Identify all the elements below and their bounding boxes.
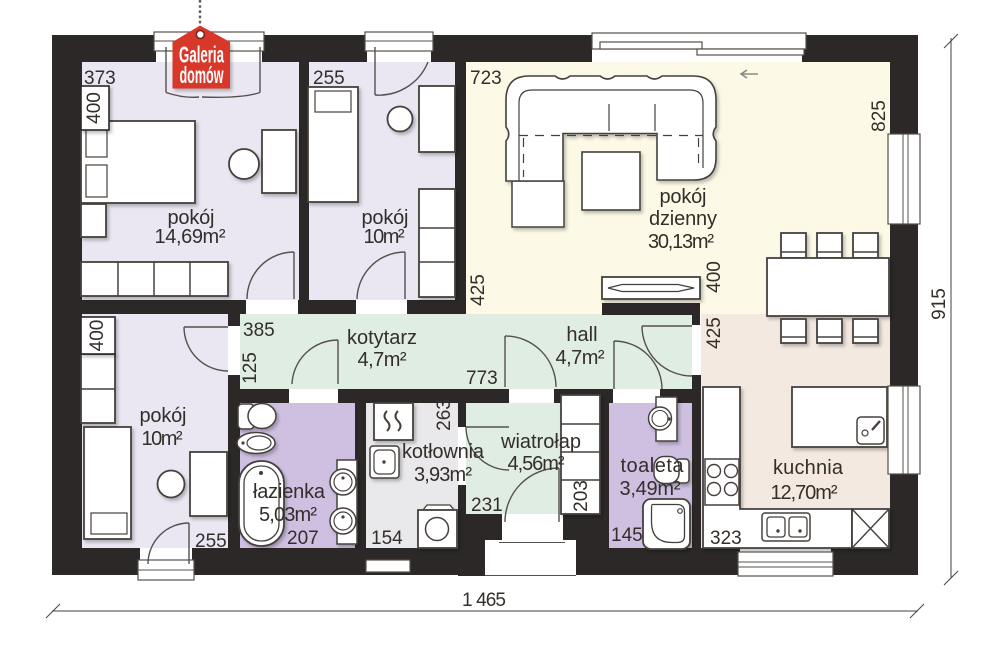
svg-text:723: 723 bbox=[470, 68, 502, 89]
svg-text:825: 825 bbox=[869, 100, 890, 132]
svg-text:toaleta: toaleta bbox=[621, 455, 685, 477]
svg-text:pokój: pokój bbox=[140, 405, 187, 427]
svg-text:425: 425 bbox=[704, 317, 725, 349]
svg-text:154: 154 bbox=[371, 528, 403, 549]
svg-text:373: 373 bbox=[84, 68, 116, 89]
svg-text:10m²: 10m² bbox=[142, 428, 183, 450]
svg-text:14,69m²: 14,69m² bbox=[155, 226, 226, 248]
svg-text:domów: domów bbox=[180, 62, 224, 88]
svg-text:125: 125 bbox=[240, 352, 261, 384]
svg-text:915: 915 bbox=[929, 288, 950, 320]
svg-text:203: 203 bbox=[571, 480, 592, 512]
svg-text:263: 263 bbox=[434, 399, 455, 431]
svg-text:pokój: pokój bbox=[660, 186, 707, 208]
svg-text:kuchnia: kuchnia bbox=[773, 457, 844, 479]
svg-text:255: 255 bbox=[195, 531, 227, 552]
svg-text:wiatrołap: wiatrołap bbox=[500, 431, 581, 453]
svg-text:255: 255 bbox=[313, 68, 345, 89]
svg-text:385: 385 bbox=[243, 320, 275, 341]
svg-text:4,7m²: 4,7m² bbox=[556, 347, 605, 369]
svg-text:425: 425 bbox=[468, 274, 489, 306]
svg-text:400: 400 bbox=[87, 320, 108, 352]
svg-text:łazienka: łazienka bbox=[253, 481, 326, 503]
svg-text:12,70m²: 12,70m² bbox=[771, 482, 838, 504]
svg-text:kotytarz: kotytarz bbox=[347, 327, 417, 349]
svg-text:773: 773 bbox=[466, 368, 498, 389]
svg-text:3,49m²: 3,49m² bbox=[620, 478, 681, 500]
svg-text:dzienny: dzienny bbox=[649, 208, 717, 230]
svg-text:231: 231 bbox=[471, 495, 503, 516]
svg-text:4,56m²: 4,56m² bbox=[508, 453, 565, 475]
svg-text:4,7m²: 4,7m² bbox=[358, 349, 407, 371]
svg-text:207: 207 bbox=[287, 528, 319, 549]
svg-text:kotłownia: kotłownia bbox=[402, 441, 485, 463]
svg-text:5,03m²: 5,03m² bbox=[259, 504, 317, 526]
svg-text:1 465: 1 465 bbox=[462, 590, 506, 611]
svg-text:30,13m²: 30,13m² bbox=[648, 231, 714, 253]
svg-text:hall: hall bbox=[566, 324, 597, 346]
svg-text:3,93m²: 3,93m² bbox=[414, 464, 472, 486]
svg-text:400: 400 bbox=[84, 92, 105, 124]
svg-text:10m²: 10m² bbox=[364, 226, 405, 248]
svg-text:323: 323 bbox=[710, 528, 742, 549]
svg-text:400: 400 bbox=[704, 261, 725, 293]
svg-text:145: 145 bbox=[611, 525, 643, 546]
